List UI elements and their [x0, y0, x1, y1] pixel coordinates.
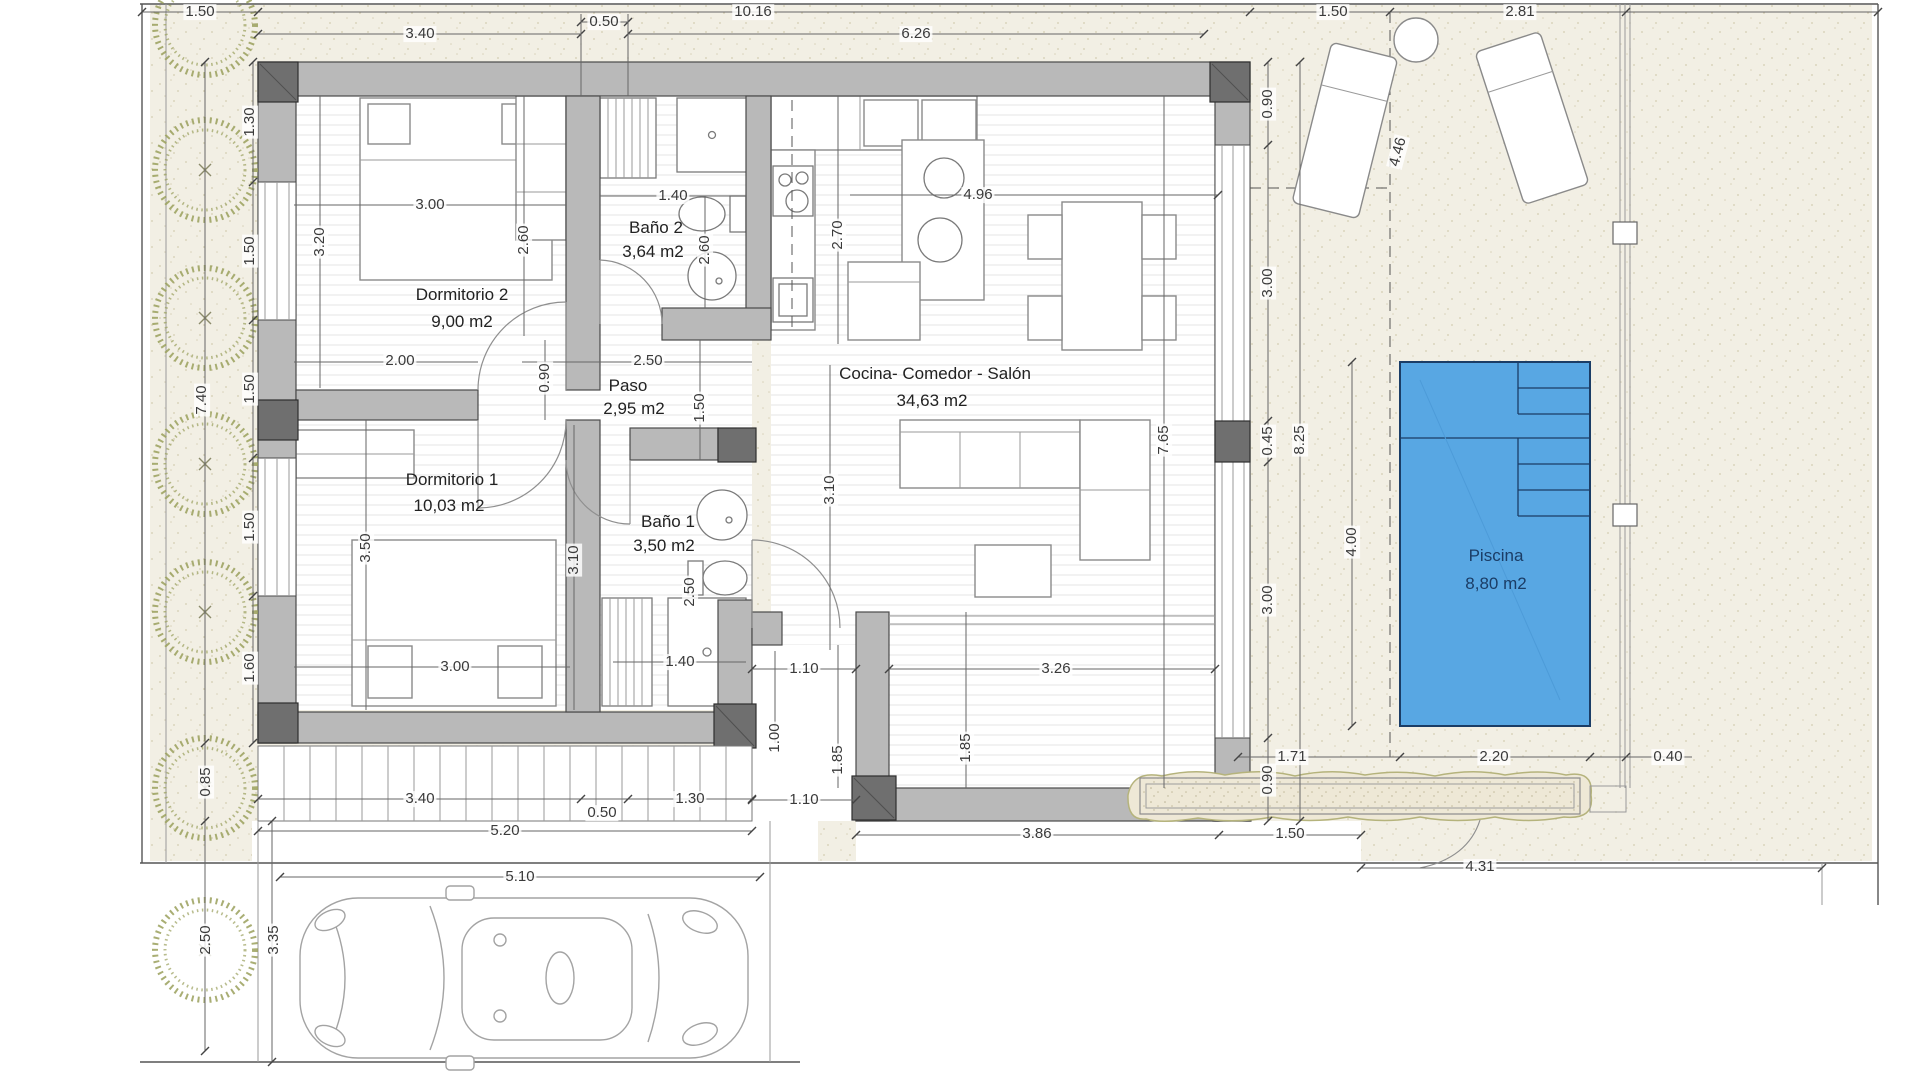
floor-plan-drawing [0, 0, 1920, 1080]
window-left-dorm1 [258, 458, 296, 596]
window-right-lower [1215, 462, 1250, 738]
planter-bed [1128, 772, 1626, 822]
armchair [848, 262, 920, 340]
window-left-dorm2 [258, 182, 296, 320]
sink-bano1 [697, 490, 747, 540]
stairs-lower [602, 598, 652, 706]
dining-table [1062, 202, 1142, 350]
fridge [864, 100, 918, 146]
car [300, 886, 748, 1070]
chair [1142, 215, 1176, 259]
stairs-upper [600, 98, 656, 178]
chair [1142, 296, 1176, 340]
side-table [1394, 18, 1438, 62]
sink-bano2 [688, 252, 736, 300]
toilet-bano2 [679, 197, 725, 231]
floor-plan: 1.5010.161.502.810.503.406.261.301.501.5… [0, 0, 1920, 1080]
window-right-upper [1215, 145, 1250, 421]
pool [1400, 362, 1590, 726]
chair [1028, 296, 1062, 340]
sofa [900, 420, 1080, 488]
coffee-table [975, 545, 1051, 597]
chair [1028, 215, 1062, 259]
toilet-bano1 [703, 561, 747, 595]
